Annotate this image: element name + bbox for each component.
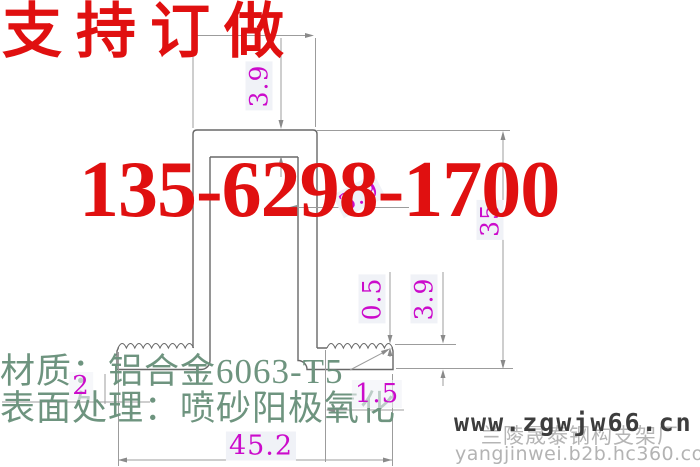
dim-foot-height: 3.9 [411,275,438,324]
banner-phone-number: 135-6298-1700 [79,150,559,230]
dim-overall-width: 45.2 [226,432,296,461]
dim-foot-lip: 2 [69,372,93,400]
serration-left [118,344,194,349]
dim-foot-offset: 1.5 [352,380,402,408]
watermark-website: www.zgwjw66.cn [454,410,693,435]
dim-top-thickness: 3.9 [246,62,273,111]
dim-tooth-depth: 0.5 [359,275,386,324]
spec-surface-finish: 表面处理：喷砂阳极氧化 [0,391,396,426]
banner-custom-order-text: 支持订做 [2,2,298,62]
product-image: 3.9 3.9 35 0.5 3.9 1.5 2 45.2 材质：铝合金6063… [0,0,700,467]
spec-material: 材质：铝合金6063-T5 [0,354,344,389]
watermark-store-url: yangjinwei.b2b.hc360.com [455,445,700,464]
serration-right [327,344,393,349]
